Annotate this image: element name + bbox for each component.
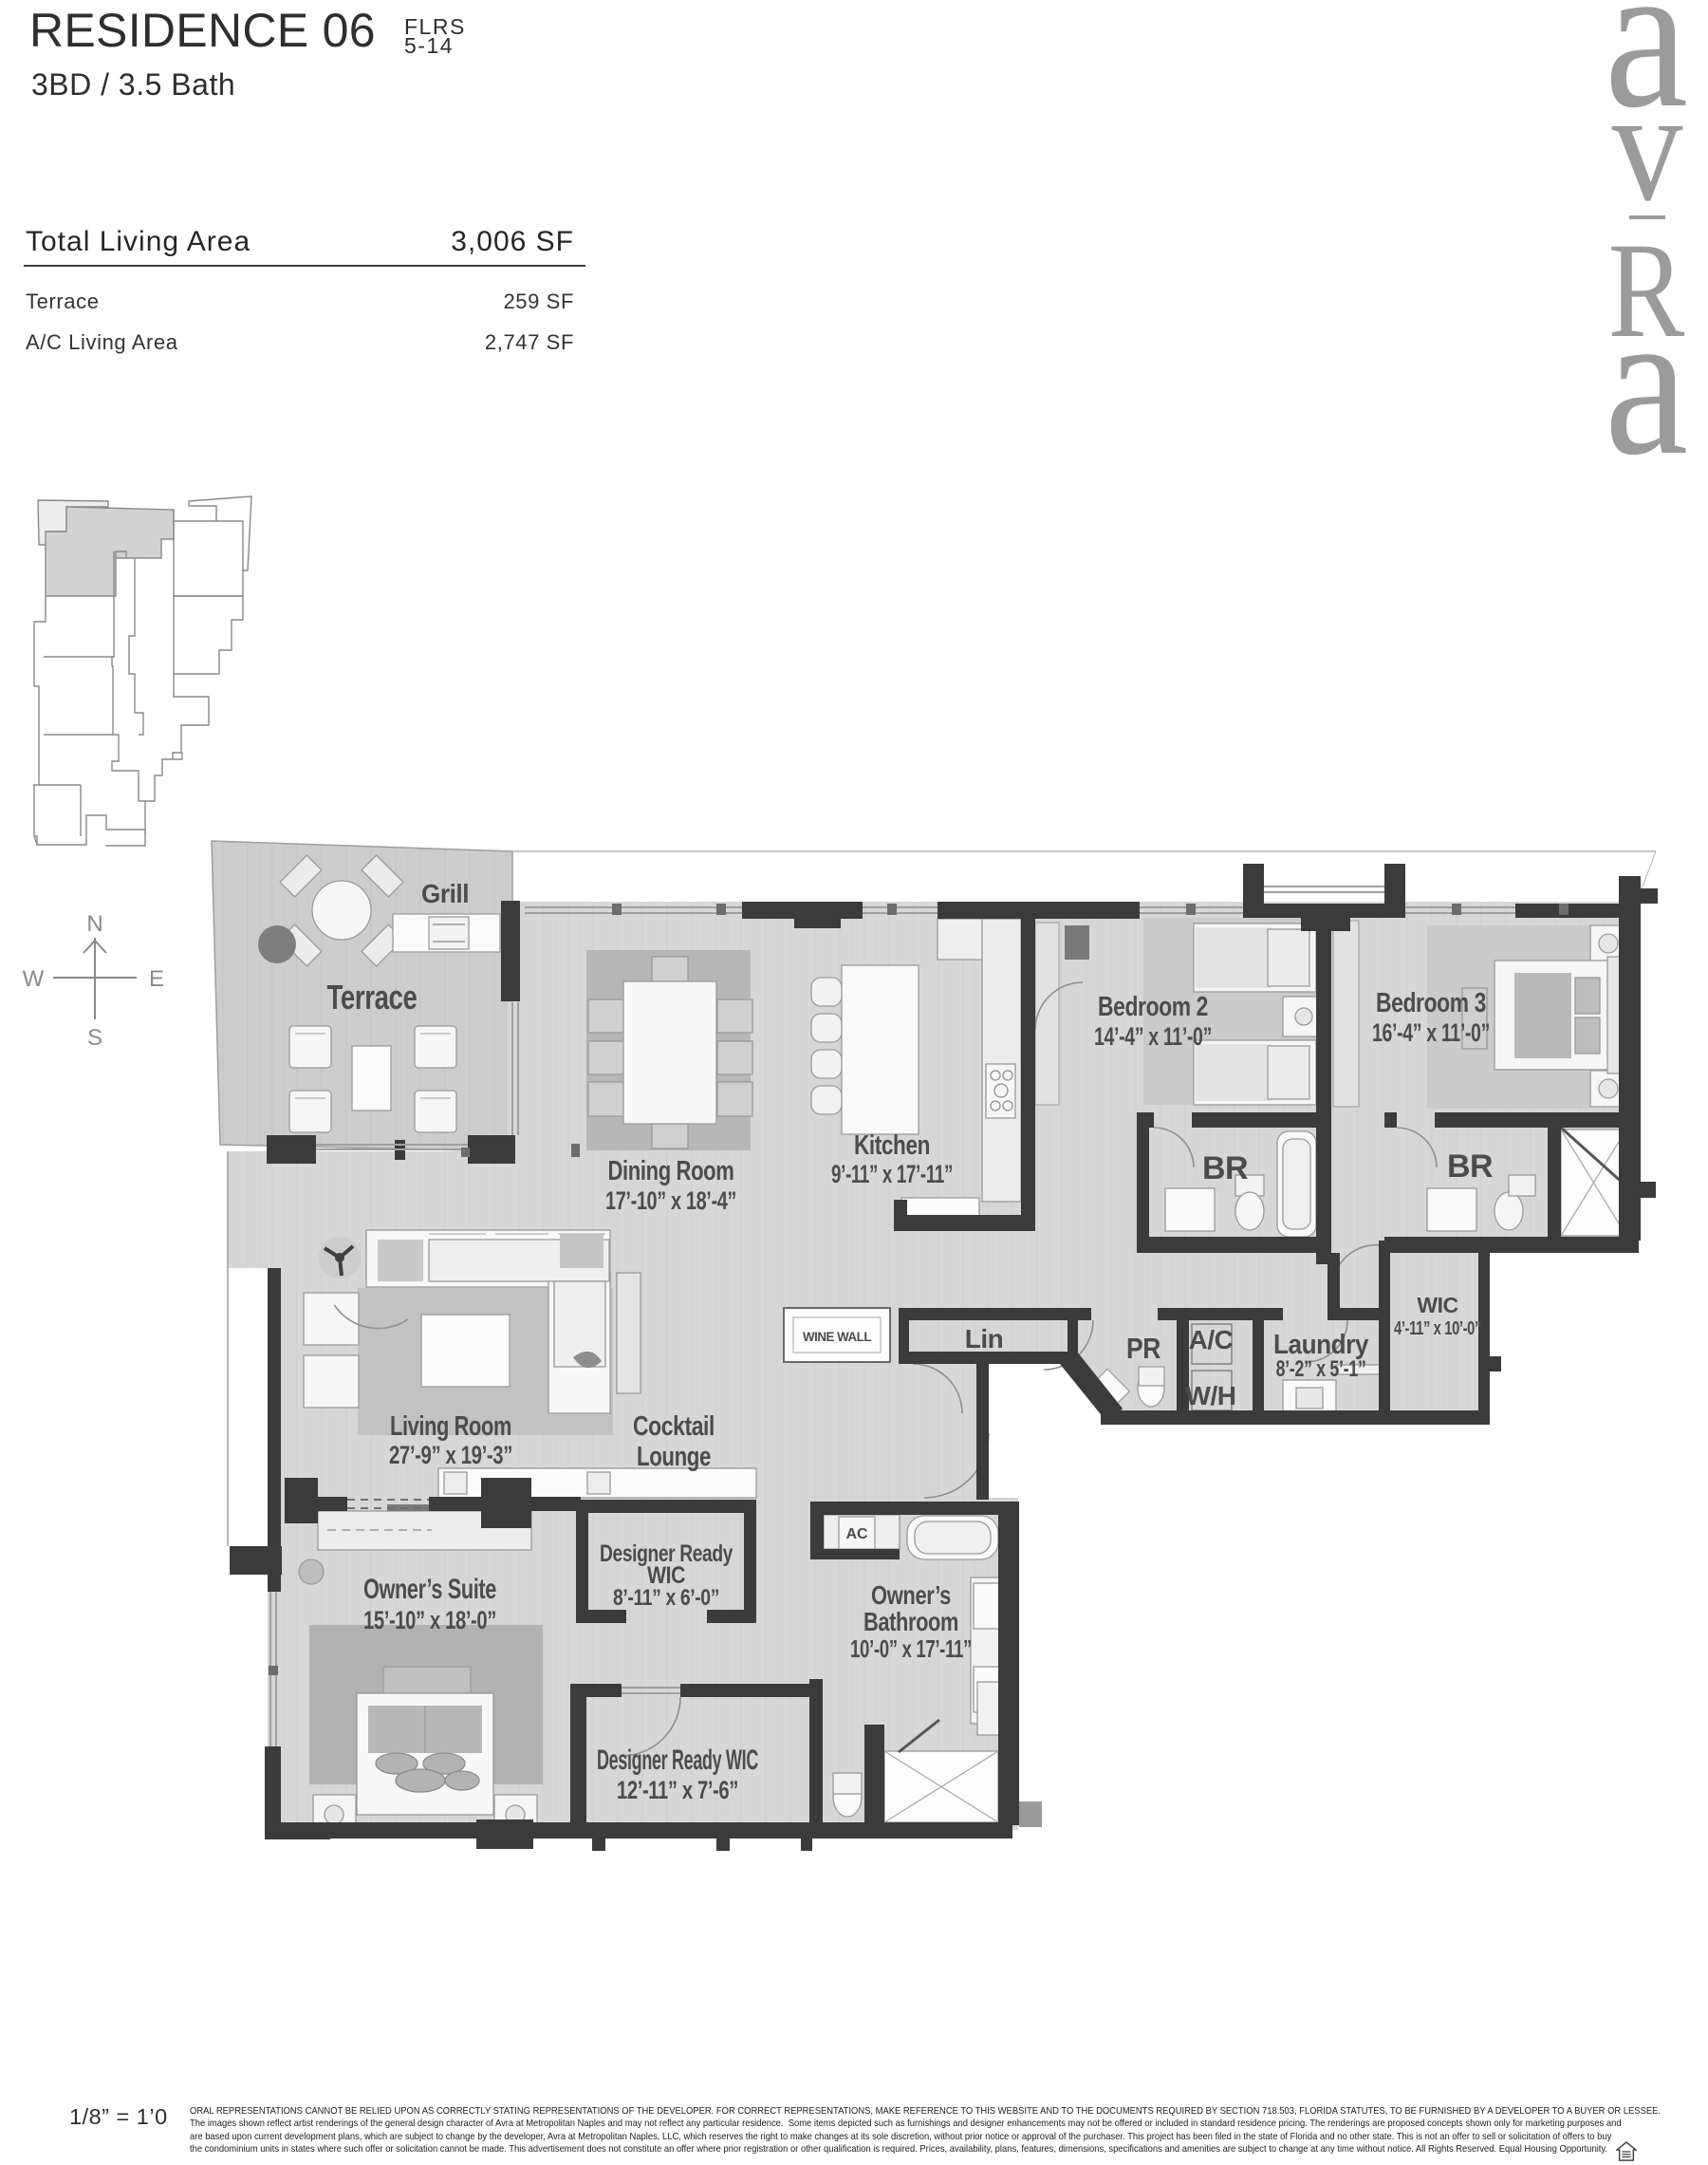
svg-text:N: N [86, 911, 102, 937]
svg-text:AC: AC [845, 1526, 868, 1542]
svg-text:Lounge: Lounge [637, 1442, 711, 1472]
svg-text:9’-11” x 17’-11”: 9’-11” x 17’-11” [831, 1160, 953, 1188]
svg-text:Bathroom: Bathroom [863, 1607, 958, 1636]
svg-text:Bedroom 2: Bedroom 2 [1098, 992, 1208, 1022]
svg-text:BR: BR [1447, 1148, 1493, 1185]
svg-text:A/C: A/C [1189, 1325, 1234, 1354]
svg-text:W: W [23, 966, 45, 992]
svg-text:Kitchen: Kitchen [854, 1130, 930, 1161]
svg-text:v: v [1612, 58, 1683, 234]
svg-text:Cocktail: Cocktail [633, 1411, 715, 1442]
svg-text:Grill: Grill [421, 879, 469, 908]
svg-text:Designer Ready WIC: Designer Ready WIC [597, 1745, 758, 1776]
svg-text:8’-11” x 6’-0”: 8’-11” x 6’-0” [613, 1585, 719, 1611]
svg-text:10’-0” x 17’-11”: 10’-0” x 17’-11” [850, 1634, 972, 1663]
svg-text:8’-2” x 5’-1”: 8’-2” x 5’-1” [1276, 1356, 1366, 1382]
svg-text:Living Room: Living Room [390, 1411, 511, 1442]
svg-text:E: E [149, 966, 164, 992]
svg-text:Bedroom 3: Bedroom 3 [1376, 988, 1486, 1018]
svg-text:4’-11” x 10’-0”: 4’-11” x 10’-0” [1394, 1318, 1481, 1339]
svg-text:Owner’s Suite: Owner’s Suite [363, 1574, 496, 1605]
svg-text:WINE WALL: WINE WALL [803, 1329, 872, 1344]
svg-text:17’-10” x 18’-4”: 17’-10” x 18’-4” [605, 1186, 736, 1215]
svg-text:12’-11” x 7’-6”: 12’-11” x 7’-6” [617, 1776, 738, 1804]
svg-text:Owner’s: Owner’s [871, 1580, 951, 1610]
svg-text:S: S [87, 1025, 102, 1051]
svg-text:WIC: WIC [1417, 1293, 1457, 1317]
svg-text:Terrace: Terrace [327, 978, 418, 1017]
svg-text:W/H: W/H [1186, 1381, 1236, 1410]
svg-text:27’-9” x 19’-3”: 27’-9” x 19’-3” [389, 1441, 512, 1469]
svg-text:PR: PR [1126, 1332, 1160, 1365]
svg-text:Dining Room: Dining Room [608, 1156, 734, 1186]
svg-text:15’-10” x 18’-0”: 15’-10” x 18’-0” [363, 1606, 496, 1634]
svg-text:14’-4” x 11’-0”: 14’-4” x 11’-0” [1094, 1022, 1212, 1051]
svg-text:BR: BR [1202, 1150, 1248, 1186]
svg-text:a: a [1605, 267, 1688, 498]
svg-text:16’-4” x 11’-0”: 16’-4” x 11’-0” [1372, 1018, 1490, 1047]
svg-text:Lin: Lin [965, 1324, 1004, 1353]
